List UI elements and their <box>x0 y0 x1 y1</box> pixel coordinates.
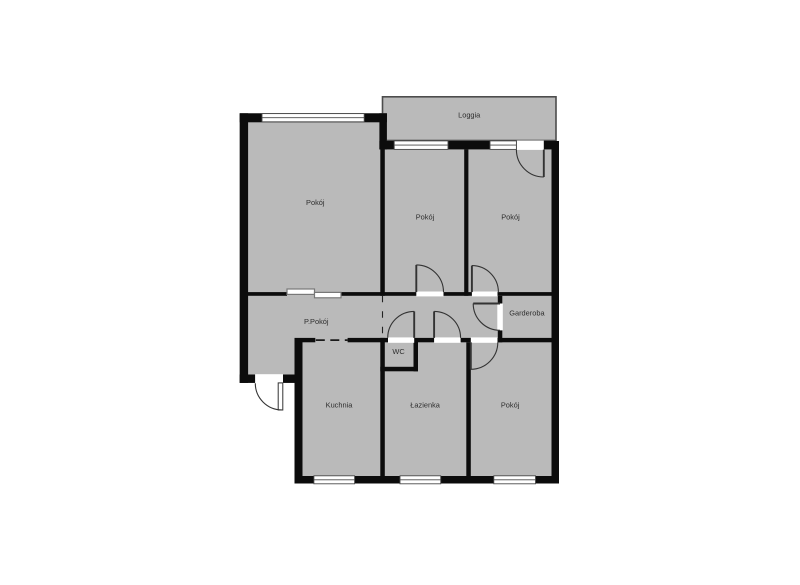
svg-text:Pokój: Pokój <box>501 400 520 409</box>
svg-text:Pokój: Pokój <box>501 213 520 222</box>
svg-text:Łazienka: Łazienka <box>410 400 440 409</box>
svg-text:Loggia: Loggia <box>458 111 481 120</box>
svg-text:Garderoba: Garderoba <box>509 308 545 317</box>
svg-text:Pokój: Pokój <box>306 198 325 207</box>
svg-text:Pokój: Pokój <box>416 213 435 222</box>
svg-text:Kuchnia: Kuchnia <box>326 400 354 409</box>
svg-text:WC: WC <box>392 347 405 356</box>
svg-text:P.Pokój: P.Pokój <box>304 317 329 326</box>
